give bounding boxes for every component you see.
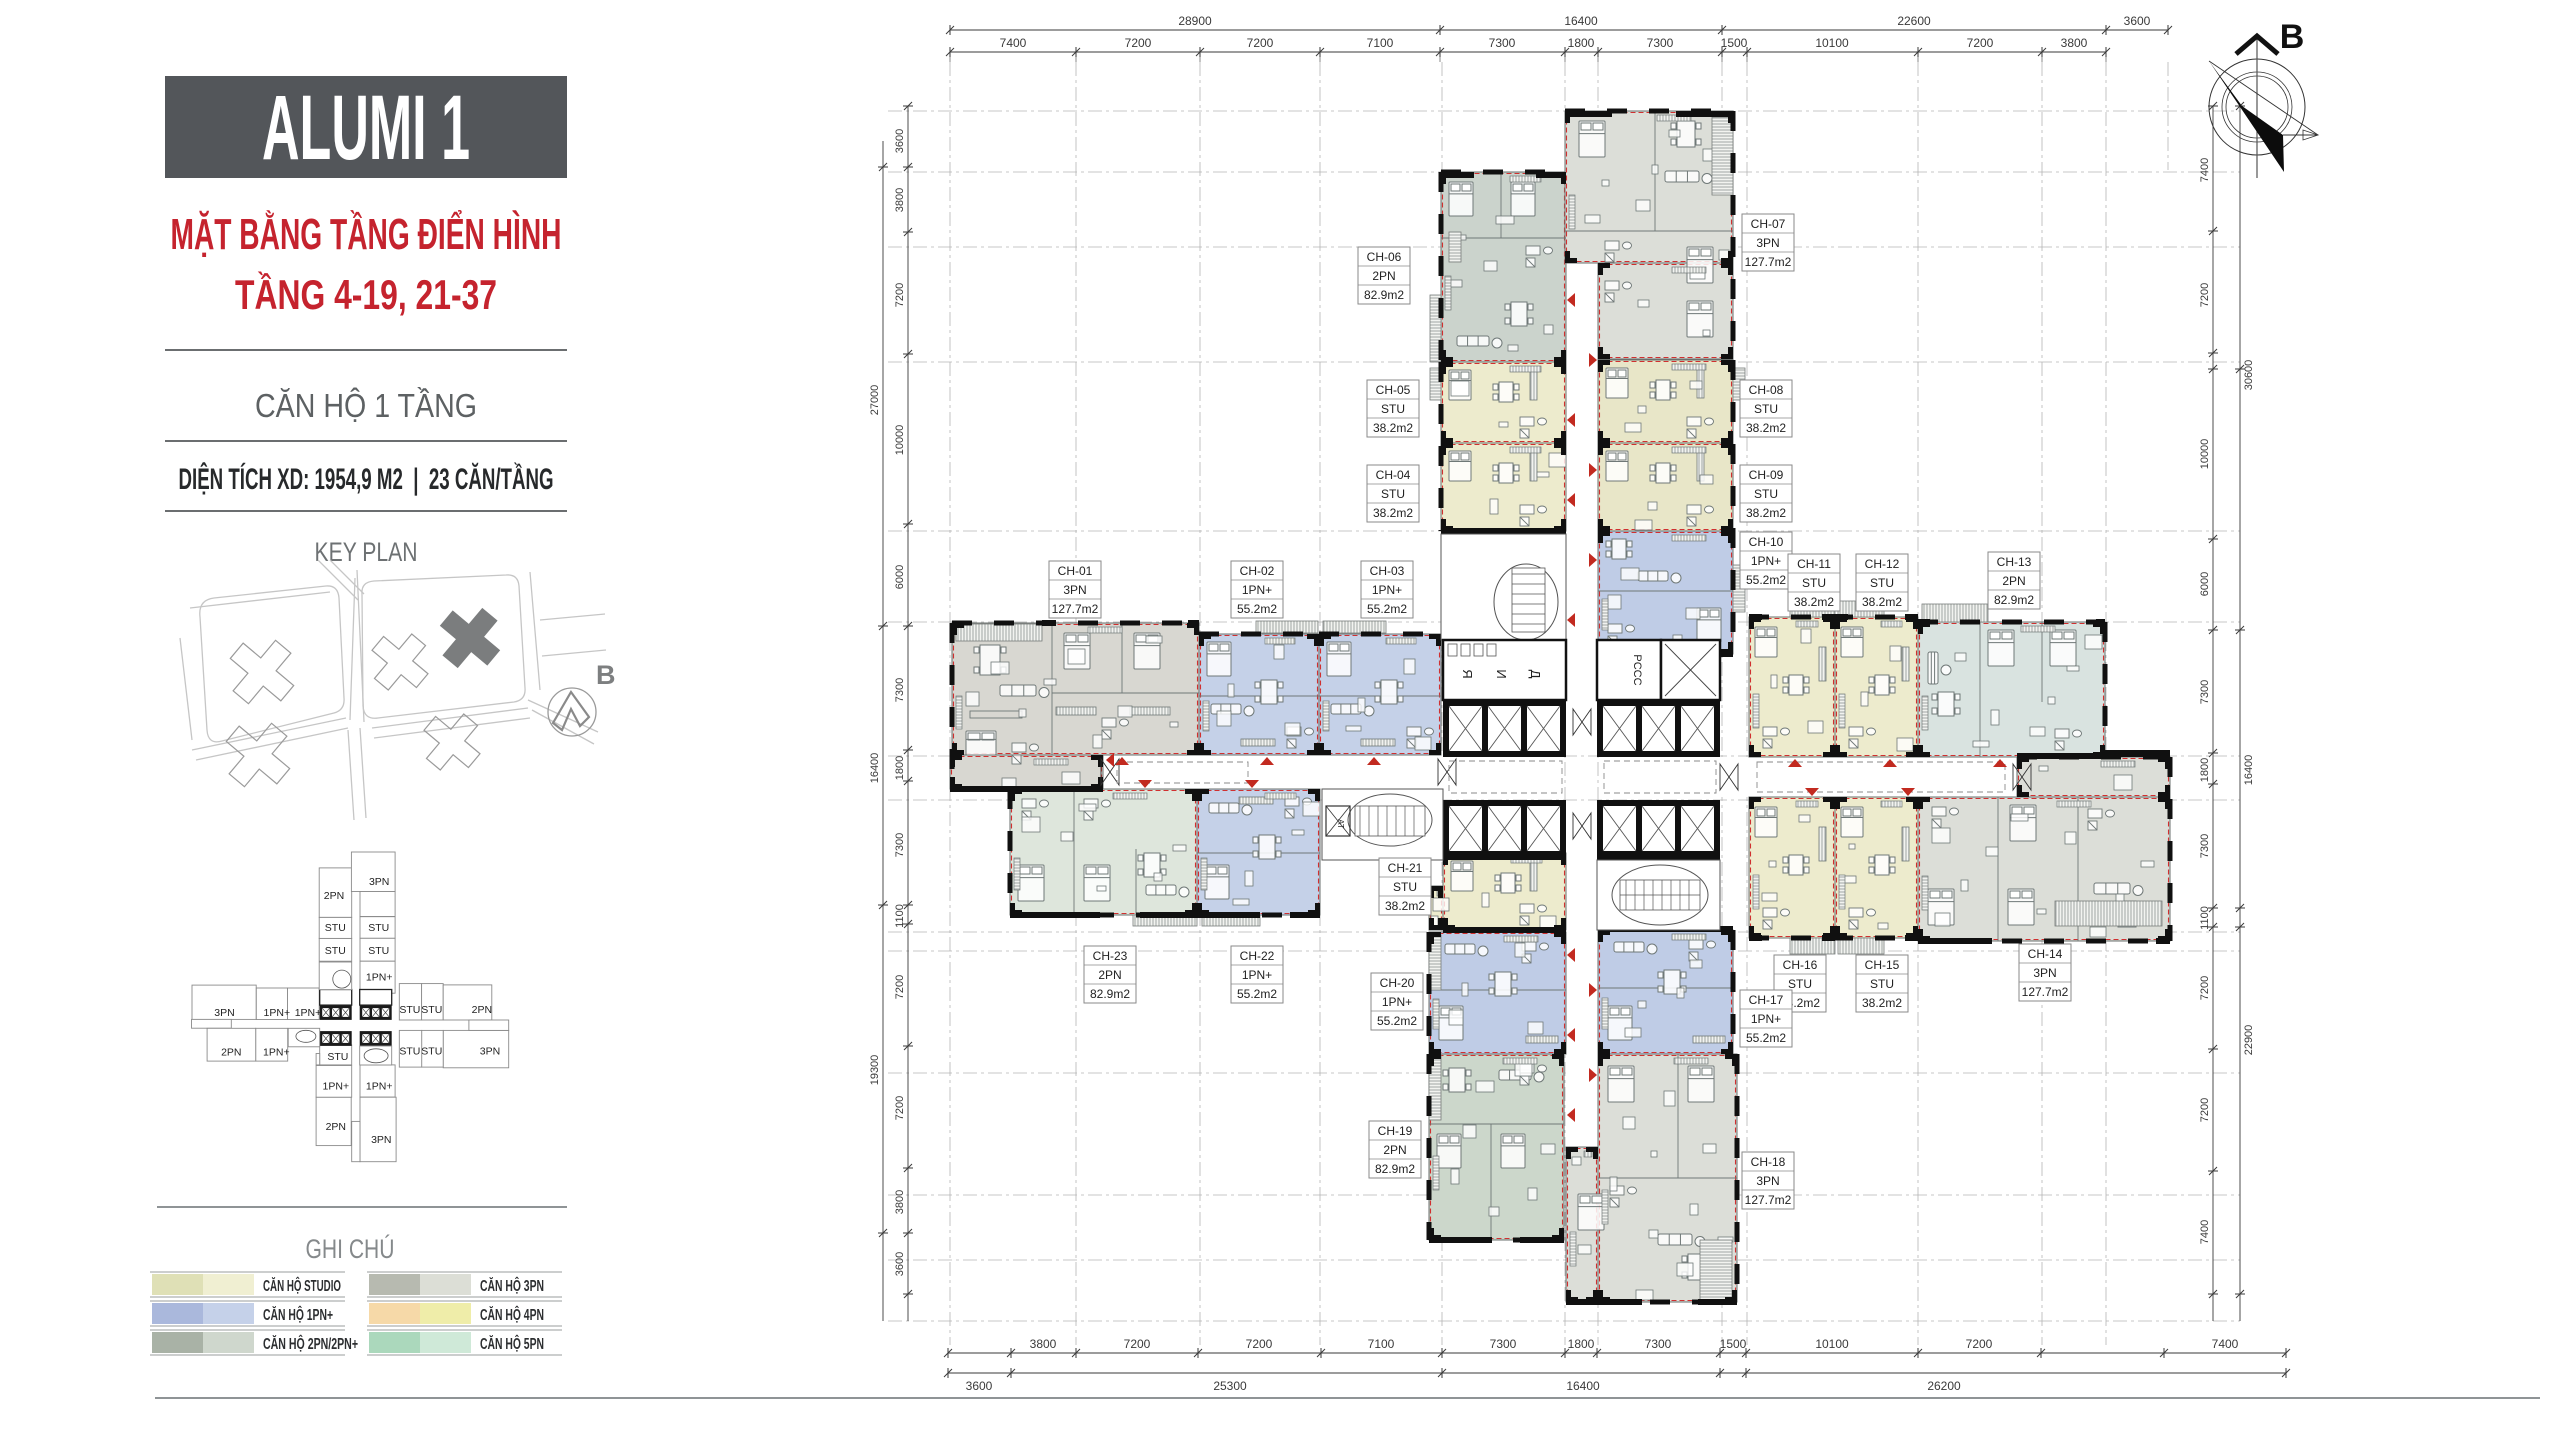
svg-text:38.2m2: 38.2m2 [1862, 996, 1902, 1010]
svg-text:CH-12: CH-12 [1865, 557, 1900, 571]
svg-text:82.9m2: 82.9m2 [1375, 1162, 1415, 1176]
svg-text:CH-16: CH-16 [1783, 958, 1818, 972]
svg-text:6000: 6000 [2199, 572, 2211, 596]
svg-text:1800: 1800 [894, 756, 906, 780]
svg-text:16400: 16400 [2243, 755, 2255, 786]
svg-text:7200: 7200 [2199, 1098, 2211, 1122]
svg-text:CĂN HỘ 5PN: CĂN HỘ 5PN [480, 1334, 544, 1353]
svg-text:STU: STU [1381, 402, 1405, 416]
svg-text:7300: 7300 [1490, 1337, 1517, 1351]
svg-text:127.7m2: 127.7m2 [1745, 255, 1792, 269]
svg-text:CH-03: CH-03 [1370, 564, 1405, 578]
svg-text:CH-05: CH-05 [1376, 383, 1411, 397]
svg-text:STU: STU [1754, 487, 1778, 501]
svg-text:10000: 10000 [894, 425, 906, 456]
svg-text:10100: 10100 [1815, 36, 1849, 50]
svg-text:7100: 7100 [1367, 36, 1394, 50]
svg-text:1PN+: 1PN+ [1751, 554, 1781, 568]
svg-text:3800: 3800 [2061, 36, 2088, 50]
svg-text:6000: 6000 [894, 565, 906, 589]
svg-text:3PN: 3PN [1756, 1174, 1779, 1188]
svg-text:7200: 7200 [1124, 1337, 1151, 1351]
svg-text:CH-09: CH-09 [1749, 468, 1784, 482]
svg-text:CH-06: CH-06 [1367, 250, 1402, 264]
svg-text:3800: 3800 [894, 1190, 906, 1214]
svg-text:1500: 1500 [1720, 1337, 1747, 1351]
svg-text:26200: 26200 [1927, 1379, 1961, 1393]
svg-text:3PN: 3PN [2033, 966, 2056, 980]
svg-text:55.2m2: 55.2m2 [1237, 987, 1277, 1001]
svg-text:7200: 7200 [1247, 36, 1274, 50]
svg-text:CĂN HỘ 3PN: CĂN HỘ 3PN [480, 1276, 544, 1295]
svg-text:CH-08: CH-08 [1749, 383, 1784, 397]
svg-text:CH-20: CH-20 [1380, 976, 1415, 990]
svg-text:1800: 1800 [2199, 758, 2211, 782]
svg-text:3600: 3600 [894, 1252, 906, 1276]
svg-text:1PN+: 1PN+ [1751, 1012, 1781, 1026]
svg-text:22600: 22600 [1897, 14, 1931, 28]
svg-text:127.7m2: 127.7m2 [1745, 1193, 1792, 1207]
svg-text:STU: STU [1381, 487, 1405, 501]
svg-text:CH-19: CH-19 [1378, 1124, 1413, 1138]
svg-text:7200: 7200 [2199, 283, 2211, 307]
svg-text:10100: 10100 [1815, 1337, 1849, 1351]
svg-text:7200: 7200 [1967, 36, 1994, 50]
svg-text:3600: 3600 [2124, 14, 2151, 28]
svg-text:CH-10: CH-10 [1749, 535, 1784, 549]
svg-text:38.2m2: 38.2m2 [1794, 595, 1834, 609]
svg-text:7200: 7200 [894, 283, 906, 307]
svg-text:2PN: 2PN [1372, 269, 1395, 283]
svg-text:7100: 7100 [1368, 1337, 1395, 1351]
svg-text:7300: 7300 [894, 678, 906, 702]
svg-text:38.2m2: 38.2m2 [1746, 421, 1786, 435]
svg-text:7300: 7300 [2199, 834, 2211, 858]
svg-text:82.9m2: 82.9m2 [1364, 288, 1404, 302]
svg-text:38.2m2: 38.2m2 [1385, 899, 1425, 913]
svg-text:1500: 1500 [1721, 36, 1748, 50]
svg-text:CH-23: CH-23 [1093, 949, 1128, 963]
svg-text:STU: STU [1870, 576, 1894, 590]
svg-text:CH-18: CH-18 [1751, 1155, 1786, 1169]
svg-text:7300: 7300 [894, 833, 906, 857]
svg-text:16400: 16400 [1564, 14, 1598, 28]
svg-text:3600: 3600 [894, 129, 906, 153]
svg-text:7300: 7300 [1489, 36, 1516, 50]
svg-text:CH-07: CH-07 [1751, 217, 1786, 231]
svg-text:1PN+: 1PN+ [1242, 968, 1272, 982]
svg-text:2PN: 2PN [2002, 574, 2025, 588]
svg-text:CH-21: CH-21 [1388, 861, 1423, 875]
svg-text:127.7m2: 127.7m2 [1052, 602, 1099, 616]
svg-text:22900: 22900 [2243, 1025, 2255, 1056]
svg-text:CĂN HỘ 2PN/2PN+: CĂN HỘ 2PN/2PN+ [263, 1334, 358, 1353]
svg-text:STU: STU [1754, 402, 1778, 416]
svg-text:B: B [2280, 18, 2305, 56]
svg-text:38.2m2: 38.2m2 [1373, 421, 1413, 435]
svg-text:28900: 28900 [1178, 14, 1212, 28]
svg-text:CH-01: CH-01 [1058, 564, 1093, 578]
svg-text:CĂN HỘ STUDIO: CĂN HỘ STUDIO [263, 1276, 341, 1295]
svg-text:55.2m2: 55.2m2 [1237, 602, 1277, 616]
svg-text:GHI CHÚ: GHI CHÚ [306, 1233, 395, 1264]
svg-text:CĂN HỘ 1PN+: CĂN HỘ 1PN+ [263, 1305, 333, 1324]
svg-text:CH-22: CH-22 [1240, 949, 1275, 963]
svg-text:CH-04: CH-04 [1376, 468, 1411, 482]
svg-text:82.9m2: 82.9m2 [1994, 593, 2034, 607]
svg-text:25300: 25300 [1213, 1379, 1247, 1393]
svg-text:16400: 16400 [869, 753, 881, 784]
svg-text:CH-02: CH-02 [1240, 564, 1275, 578]
svg-text:CH-13: CH-13 [1997, 555, 2032, 569]
svg-text:2PN: 2PN [1098, 968, 1121, 982]
svg-text:STU: STU [1870, 977, 1894, 991]
svg-text:1100: 1100 [2199, 906, 2211, 930]
svg-text:CH-14: CH-14 [2028, 947, 2063, 961]
svg-text:CĂN HỘ 4PN: CĂN HỘ 4PN [480, 1305, 544, 1324]
svg-text:55.2m2: 55.2m2 [1746, 1031, 1786, 1045]
svg-text:16400: 16400 [1566, 1379, 1600, 1393]
svg-text:7400: 7400 [2199, 1220, 2211, 1244]
svg-text:PCCC: PCCC [1631, 654, 1643, 685]
svg-text:38.2m2: 38.2m2 [1862, 595, 1902, 609]
svg-text:3800: 3800 [894, 188, 906, 212]
svg-text:7300: 7300 [2199, 680, 2211, 704]
svg-text:30600: 30600 [2243, 360, 2255, 391]
svg-text:82.9m2: 82.9m2 [1090, 987, 1130, 1001]
svg-text:CH-15: CH-15 [1865, 958, 1900, 972]
svg-text:STU: STU [1788, 977, 1812, 991]
svg-text:7200: 7200 [1125, 36, 1152, 50]
svg-text:7200: 7200 [2199, 976, 2211, 1000]
svg-text:Я: Я [1460, 669, 1475, 678]
svg-text:И: И [1494, 669, 1509, 678]
svg-text:CH-11: CH-11 [1797, 557, 1831, 571]
svg-text:1100: 1100 [894, 904, 906, 928]
svg-text:AT: AT [1336, 819, 1345, 829]
svg-text:1PN+: 1PN+ [1242, 583, 1272, 597]
svg-text:7300: 7300 [1647, 36, 1674, 50]
svg-text:Д: Д [1528, 670, 1543, 679]
svg-text:7400: 7400 [1000, 36, 1027, 50]
svg-text:7400: 7400 [2212, 1337, 2239, 1351]
svg-text:10000: 10000 [2199, 439, 2211, 470]
svg-text:38.2m2: 38.2m2 [1373, 506, 1413, 520]
svg-text:1PN+: 1PN+ [1382, 995, 1412, 1009]
svg-text:3PN: 3PN [1063, 583, 1086, 597]
svg-text:2PN: 2PN [1383, 1143, 1406, 1157]
svg-text:7300: 7300 [1645, 1337, 1672, 1351]
svg-text:7200: 7200 [894, 1096, 906, 1120]
svg-text:7200: 7200 [1966, 1337, 1993, 1351]
svg-text:55.2m2: 55.2m2 [1377, 1014, 1417, 1028]
svg-text:1PN+: 1PN+ [1372, 583, 1402, 597]
svg-text:7200: 7200 [894, 975, 906, 999]
svg-text:55.2m2: 55.2m2 [1746, 573, 1786, 587]
svg-text:55.2m2: 55.2m2 [1367, 602, 1407, 616]
svg-text:STU: STU [1802, 576, 1826, 590]
svg-text:STU: STU [1393, 880, 1417, 894]
svg-text:3600: 3600 [966, 1379, 993, 1393]
svg-text:19300: 19300 [869, 1055, 881, 1086]
svg-text:38.2m2: 38.2m2 [1746, 506, 1786, 520]
svg-text:1800: 1800 [1568, 1337, 1595, 1351]
svg-text:127.7m2: 127.7m2 [2022, 985, 2069, 999]
svg-text:CH-17: CH-17 [1749, 993, 1784, 1007]
svg-text:3800: 3800 [1030, 1337, 1057, 1351]
svg-text:3PN: 3PN [1756, 236, 1779, 250]
svg-text:27000: 27000 [869, 385, 881, 416]
svg-text:1800: 1800 [1568, 36, 1595, 50]
svg-text:7200: 7200 [1246, 1337, 1273, 1351]
svg-text:7400: 7400 [2199, 158, 2211, 182]
